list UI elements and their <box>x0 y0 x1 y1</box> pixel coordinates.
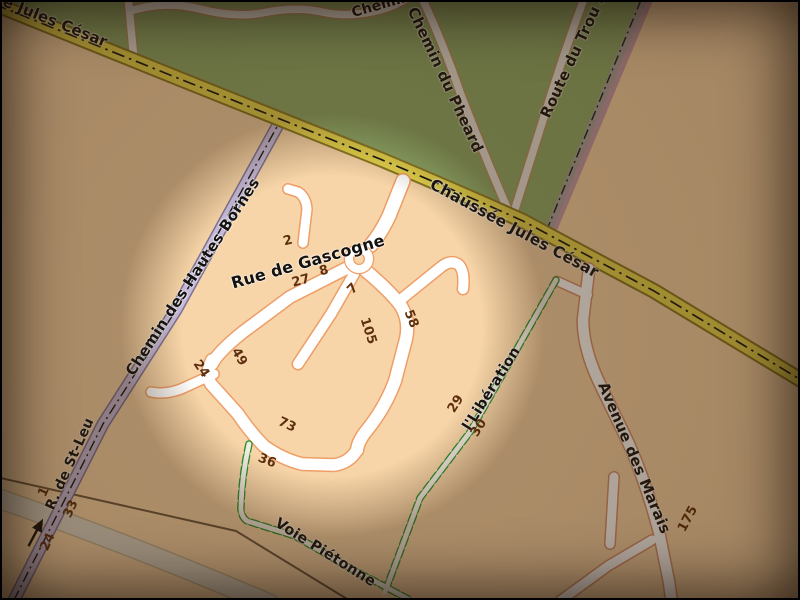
street-label-chemin-top-partial: Chemin <box>350 0 412 20</box>
street-label-route-du-trou: Route du Trou a <box>538 0 610 120</box>
map-viewport[interactable]: e Jules CésarCheminChemin du PheardRoute… <box>0 0 800 600</box>
street-label-avenue-des-marais: Avenue des Marais <box>595 380 672 536</box>
house-number-label: 2 <box>282 234 294 249</box>
house-number-label: 24 <box>38 531 57 553</box>
street-label-chemin-du-pheard: Chemin du Pheard <box>405 5 486 155</box>
house-number-label: 1 <box>36 485 52 499</box>
house-number-label: 33 <box>61 498 80 520</box>
street-label-voie-pietonne: Voie Piétonne <box>272 516 378 590</box>
house-number-label: 27 <box>291 272 312 289</box>
street-label-liberation: l'Libération <box>461 345 524 434</box>
house-number-label: 49 <box>229 346 249 368</box>
street-label-jules-cesar-partial: e Jules César <box>1 0 110 50</box>
house-number-label: 58 <box>402 308 421 330</box>
house-number-label: 36 <box>256 452 278 471</box>
house-number-label: 105 <box>358 316 379 346</box>
house-number-label: 7 <box>345 281 361 297</box>
house-number-label: 24 <box>190 358 211 380</box>
house-number-label: 175 <box>676 504 700 534</box>
house-number-label: 29 <box>446 393 467 415</box>
house-number-label: 73 <box>276 415 298 434</box>
street-label-chaussee-jules-cesar: Chaussée Jules César <box>427 177 601 281</box>
map-labels: e Jules CésarCheminChemin du PheardRoute… <box>0 0 800 600</box>
house-number-label: 8 <box>318 264 330 279</box>
